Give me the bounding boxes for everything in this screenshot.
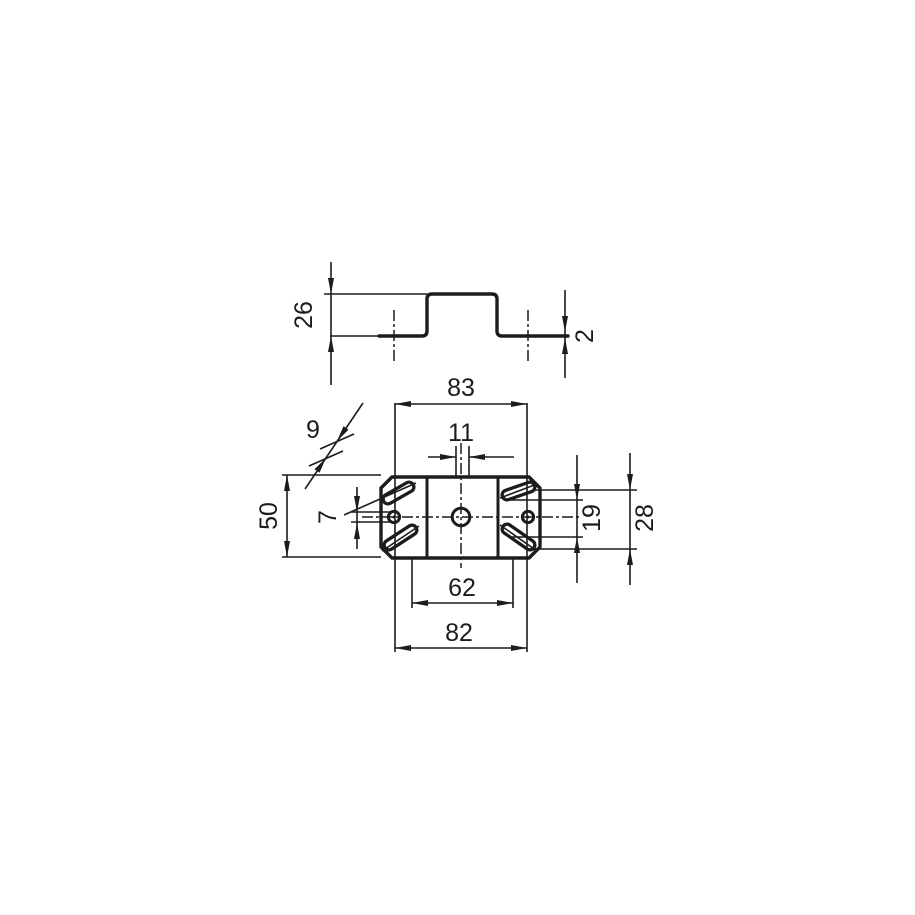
dim-label-50: 50 <box>255 502 283 530</box>
bracket-profile-outline <box>379 294 568 336</box>
arrowhead <box>469 454 485 460</box>
arrowhead <box>574 537 580 553</box>
dim-label-62: 62 <box>448 574 476 602</box>
dim-overall-width: 82 <box>395 619 527 651</box>
dim-label-28: 28 <box>631 504 659 532</box>
dim-small-hole: 7 <box>314 487 360 549</box>
dim-slot-offset-outer: 28 <box>627 453 659 585</box>
dim-label-26: 26 <box>290 301 318 329</box>
dim-slot-offset-inner: 19 <box>574 455 606 583</box>
arrowhead <box>497 600 513 606</box>
dim-profile-thickness: 2 <box>562 290 599 378</box>
dim-label-2: 2 <box>571 329 599 343</box>
plan-view: 83 11 9 7 <box>255 374 659 652</box>
arrowhead <box>354 523 360 539</box>
dim-label-83: 83 <box>447 374 475 402</box>
dim-profile-height: 26 <box>290 262 334 385</box>
arrowhead <box>440 454 456 460</box>
arrowhead <box>395 401 411 407</box>
profile-view: 26 2 <box>290 262 599 385</box>
dim-label-19: 19 <box>578 504 606 532</box>
arrowhead <box>328 336 334 352</box>
arrowhead <box>627 474 633 490</box>
arrowhead <box>511 401 527 407</box>
dim-slot-width: 9 <box>305 403 363 489</box>
arrowhead <box>395 645 411 651</box>
arrowhead <box>328 278 334 294</box>
dim-slot-span-outer: 83 <box>395 374 527 407</box>
arrowhead <box>562 338 568 354</box>
arrowhead <box>574 484 580 500</box>
dim-label-7: 7 <box>314 510 342 524</box>
dim-slot-span-inner: 62 <box>412 574 513 606</box>
arrowhead <box>627 549 633 565</box>
arrowhead <box>562 316 568 332</box>
arrowhead <box>284 541 290 557</box>
arrowhead <box>511 645 527 651</box>
dim-center-hole: 11 <box>428 419 514 460</box>
dim-label-82: 82 <box>445 619 473 647</box>
dim-label-11: 11 <box>448 419 474 447</box>
technical-drawing-canvas: 26 2 <box>0 0 915 915</box>
dim-bracket-height: 50 <box>255 475 290 557</box>
arrowhead <box>284 475 290 491</box>
arrowhead <box>412 600 428 606</box>
dim-label-9: 9 <box>306 416 320 444</box>
bracket-drawing: 26 2 <box>0 0 915 915</box>
slot-axis-bottom-right <box>500 525 537 551</box>
